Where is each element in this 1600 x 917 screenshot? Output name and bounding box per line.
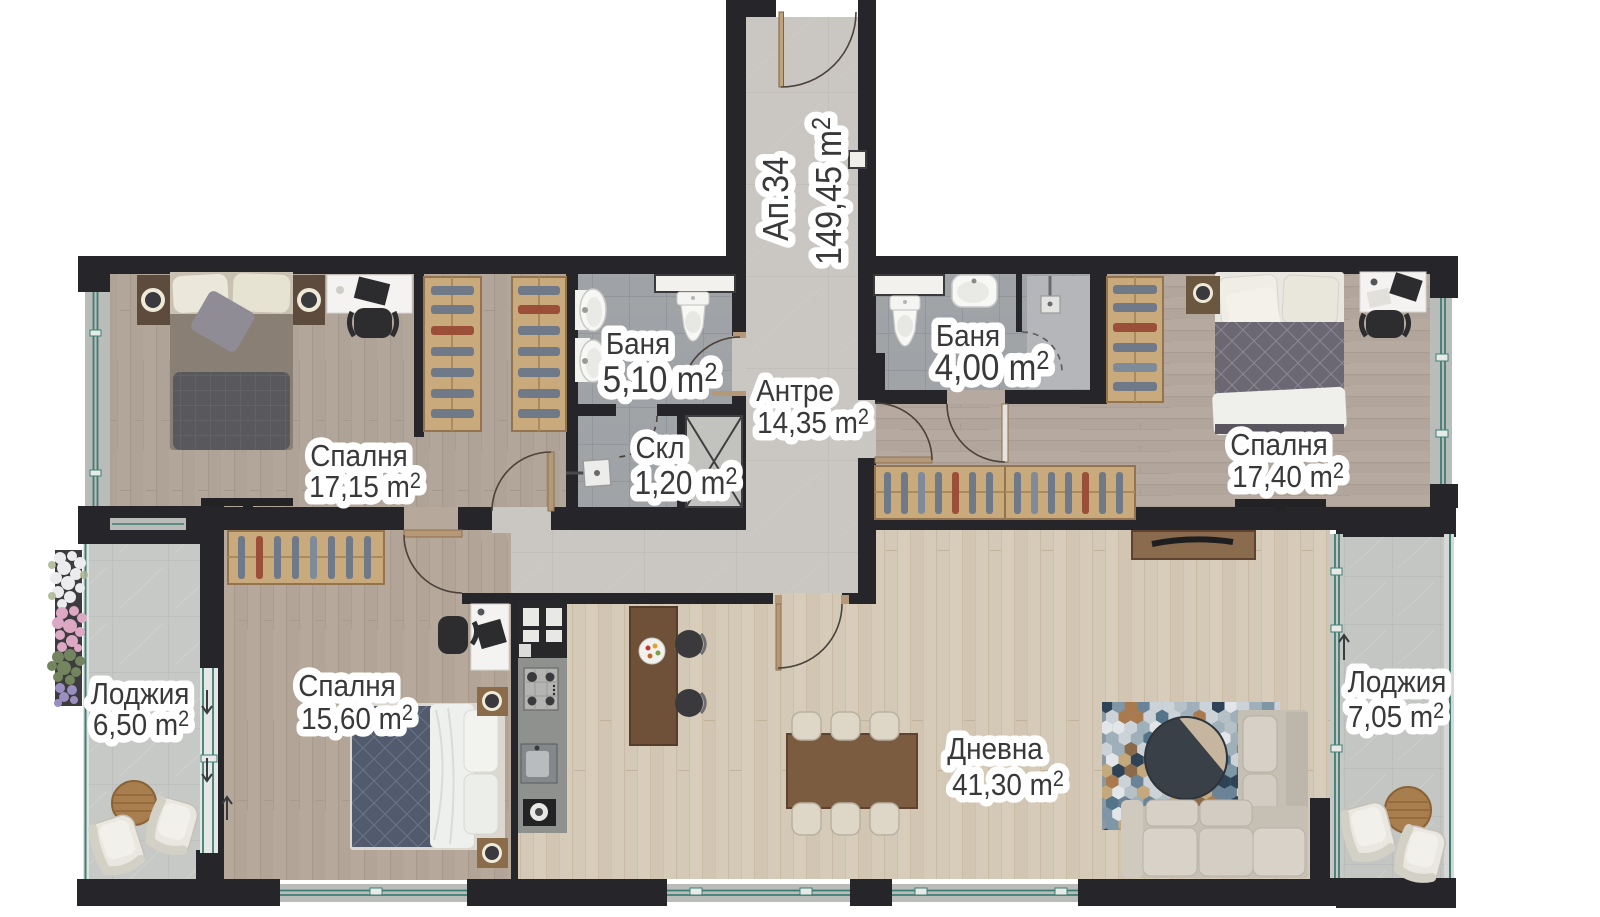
svg-text:17,40 m2: 17,40 m2	[1232, 459, 1344, 494]
svg-text:14,35 m2: 14,35 m2	[757, 405, 869, 440]
svg-text:Скл: Скл	[636, 431, 685, 466]
svg-text:6,50 m2: 6,50 m2	[93, 707, 189, 742]
svg-text:Спалня: Спалня	[1230, 428, 1328, 463]
svg-text:Дневна: Дневна	[947, 732, 1043, 767]
svg-text:17,15 m2: 17,15 m2	[309, 469, 421, 504]
svg-text:7,05 m2: 7,05 m2	[1348, 699, 1444, 734]
svg-text:41,30 m2: 41,30 m2	[952, 767, 1064, 802]
svg-text:Баня: Баня	[606, 327, 670, 362]
svg-text:15,60 m2: 15,60 m2	[301, 701, 413, 736]
svg-text:Ап.34: Ап.34	[756, 157, 796, 241]
svg-text:149,45 m2: 149,45 m2	[808, 117, 849, 265]
svg-text:5,10 m2: 5,10 m2	[603, 359, 718, 400]
svg-text:4,00 m2: 4,00 m2	[935, 347, 1050, 388]
svg-text:Лоджия: Лоджия	[91, 677, 190, 712]
svg-text:Спалня: Спалня	[310, 439, 408, 474]
svg-text:Антре: Антре	[756, 374, 834, 409]
svg-text:1,20 m2: 1,20 m2	[635, 462, 738, 501]
svg-text:Спалня: Спалня	[298, 669, 396, 704]
svg-text:Лоджия: Лоджия	[1348, 665, 1447, 700]
